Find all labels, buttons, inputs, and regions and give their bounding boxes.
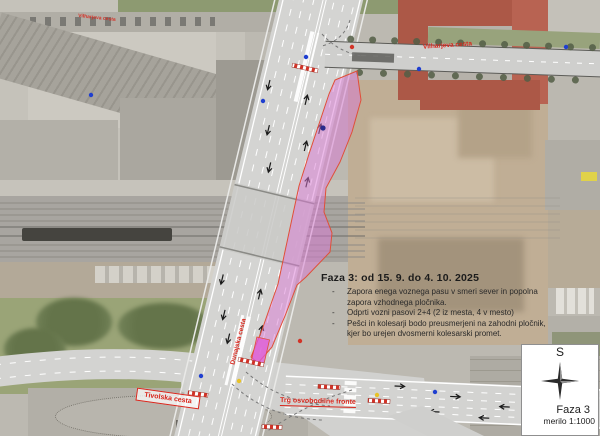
north-letter: S <box>522 346 598 359</box>
bullet-dash: - <box>330 319 347 340</box>
bullet-text: Zapora enega voznega pasu v smeri sever … <box>347 287 554 308</box>
bullet-text: Odprti vozni pasovi 2+4 (2 iz mesta, 4 v… <box>347 308 554 319</box>
bullet-text: Pešci in kolesarji bodo preusmerjeni na … <box>347 319 554 340</box>
phase-notes: - Zapora enega voznega pasu v smeri seve… <box>330 287 556 340</box>
tivolska-road <box>0 357 210 388</box>
roadworks-map-phase3: Vilharjeva cesta Vilharjeva cesta Dunajs… <box>0 0 600 436</box>
photo-train <box>22 228 172 241</box>
compass-star-icon <box>538 359 582 403</box>
phase-title: Faza 3: od 15. 9. do 4. 10. 2025 <box>321 272 479 284</box>
legend-box: S Faza 3 merilo 1:1000 <box>521 344 599 436</box>
railway-tracks-east <box>355 198 560 238</box>
phase-note-item: - Pešci in kolesarji bodo preusmerjeni n… <box>330 319 556 340</box>
map-drawing-layer <box>0 0 600 436</box>
phase-note-item: - Zapora enega voznega pasu v smeri seve… <box>330 287 556 308</box>
legend-scale-label: merilo 1:1000 <box>522 416 598 426</box>
bus-platform <box>352 52 394 62</box>
phase-note-item: - Odprti vozni pasovi 2+4 (2 iz mesta, 4… <box>330 308 556 319</box>
bullet-dash: - <box>330 308 347 319</box>
bullet-dash: - <box>330 287 347 308</box>
legend-phase-label: Faza 3 <box>522 404 598 416</box>
